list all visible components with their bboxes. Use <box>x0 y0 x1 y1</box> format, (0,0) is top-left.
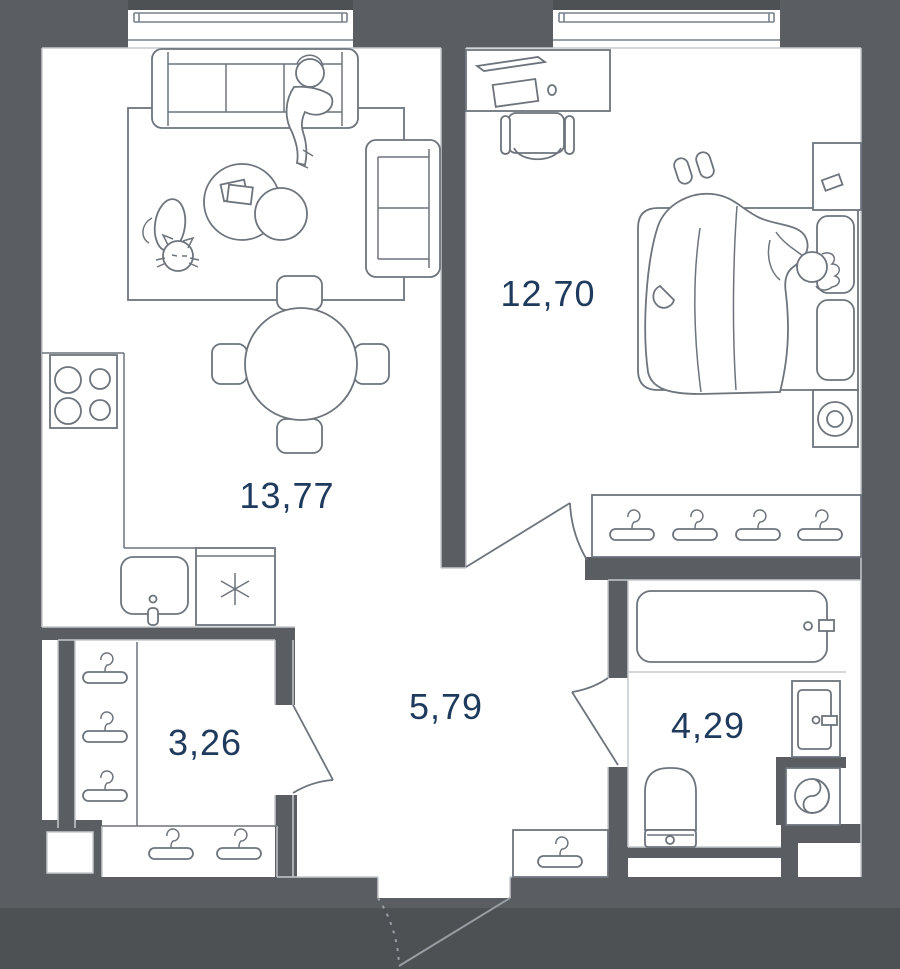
toilet <box>645 768 696 847</box>
floor-plan-canvas: 13,77 12,70 5,79 3,26 4,29 <box>0 0 900 969</box>
bedside-shelf <box>813 143 861 210</box>
wall-divider-living-bedroom <box>441 48 466 568</box>
stove <box>50 355 117 428</box>
sofa <box>152 49 358 128</box>
chair <box>354 344 389 384</box>
room-label-wardrobe: 3,26 <box>168 722 242 763</box>
blanket <box>645 194 807 394</box>
wall-niche <box>47 832 93 873</box>
room-label-bathroom: 4,29 <box>671 705 745 746</box>
chair <box>277 276 322 310</box>
hallway-room <box>513 830 608 877</box>
room-label-living-kitchen: 13,77 <box>239 475 334 516</box>
entrance-threshold <box>378 877 510 898</box>
room-label-hallway: 5,79 <box>409 686 483 727</box>
magazine <box>227 185 253 205</box>
dishwasher <box>196 548 275 625</box>
bathtub <box>637 591 834 662</box>
window-band-bedroom <box>553 10 780 48</box>
bathroom-shaft-slab-2 <box>798 843 861 877</box>
chair <box>212 344 247 384</box>
hallway-hanger-box <box>513 830 608 877</box>
pillow <box>817 300 854 380</box>
bathroom-shaft-slab <box>628 858 781 877</box>
floor-plan: 13,77 12,70 5,79 3,26 4,29 <box>0 0 900 969</box>
floor-fan <box>813 390 858 447</box>
armchair <box>366 140 440 277</box>
dining-table <box>245 308 357 420</box>
bedroom-hanger-rail <box>592 495 861 557</box>
bed <box>638 194 858 394</box>
room-label-bedroom: 12,70 <box>500 273 595 314</box>
desk <box>466 50 610 111</box>
paper <box>493 79 539 107</box>
washing-machine <box>786 768 840 825</box>
chair <box>277 419 322 453</box>
window-band-living <box>128 10 353 48</box>
bathroom-sink <box>792 681 840 757</box>
